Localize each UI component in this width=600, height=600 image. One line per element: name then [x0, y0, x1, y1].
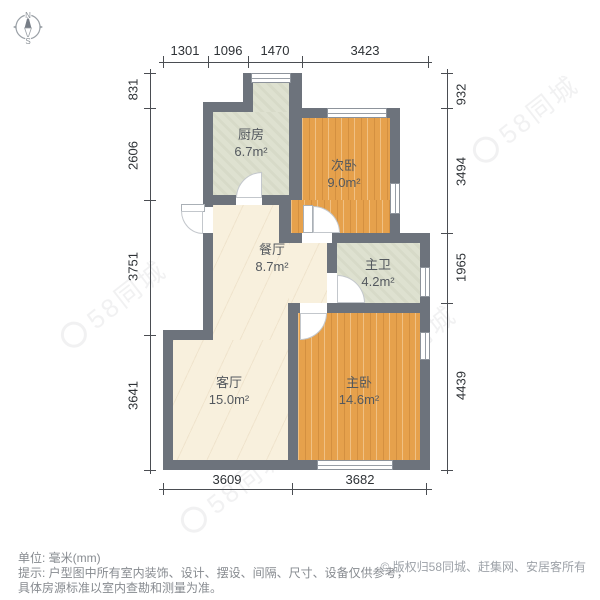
window-master-bedroom-right [420, 332, 430, 360]
dim-tick [144, 108, 156, 109]
dim-tick [248, 56, 249, 68]
dim-tick [292, 483, 293, 495]
window-second-bedroom-top [327, 108, 387, 118]
dining-room-floor-right [289, 243, 327, 303]
dim-tick [144, 470, 156, 471]
dim-tick [426, 483, 427, 495]
room-area: 14.6m² [339, 391, 379, 408]
room-area: 4.2m² [361, 273, 394, 290]
dim-label-right-2: 3494 [454, 132, 469, 212]
room-name: 厨房 [234, 126, 267, 143]
dim-line-left [150, 69, 151, 474]
dim-label-left-2: 2606 [126, 116, 141, 196]
dim-line-bottom [159, 489, 432, 490]
room-area: 8.7m² [255, 258, 288, 275]
window-second-bedroom-right [390, 183, 400, 214]
room-name: 主卧 [339, 374, 379, 391]
dim-tick [441, 233, 453, 234]
window-master-bathroom [420, 267, 430, 297]
window-master-bedroom-bottom [317, 460, 393, 470]
room-label-kitchen: 厨房 6.7m² [234, 126, 267, 160]
dim-tick [144, 335, 156, 336]
dim-tick [441, 73, 453, 74]
room-area: 6.7m² [234, 143, 267, 160]
window-kitchen [251, 73, 291, 83]
floorplan-canvas: N S 58同城 58同城 58同城 58同城 [0, 0, 600, 600]
wall-second-bedroom-right [390, 108, 400, 243]
dim-label-right-4: 4439 [454, 346, 469, 426]
room-name: 主卫 [361, 256, 394, 273]
dim-label-bottom-2: 3682 [346, 472, 375, 487]
room-name: 次卧 [327, 157, 360, 174]
dim-line-top [159, 62, 432, 63]
room-name: 餐厅 [255, 241, 288, 258]
room-name: 客厅 [209, 374, 249, 391]
room-label-second-bedroom: 次卧 9.0m² [327, 157, 360, 191]
dim-tick [144, 73, 156, 74]
room-label-living-room: 客厅 15.0m² [209, 374, 249, 408]
dim-line-right [447, 69, 448, 474]
dim-tick [208, 56, 209, 68]
dim-tick [144, 200, 156, 201]
unit-note: 单位: 毫米(mm) [18, 551, 101, 566]
master-bathroom-door-opening [327, 273, 337, 303]
dim-tick [302, 56, 303, 68]
wall-left-upper [203, 102, 213, 207]
dim-label-left-3: 3751 [126, 227, 141, 307]
entry-door-arc [181, 211, 203, 234]
dim-label-left-4: 3641 [126, 356, 141, 436]
room-label-master-bedroom: 主卧 14.6m² [339, 374, 379, 408]
dim-tick [163, 483, 164, 495]
master-bedroom-door-opening [300, 303, 327, 313]
wall-left-mid [203, 233, 213, 340]
wall-master-bedroom-left [288, 313, 298, 460]
dim-label-right-3: 1965 [454, 228, 469, 308]
dim-tick [163, 56, 164, 68]
dim-tick [441, 303, 453, 304]
dim-label-top-3: 1470 [261, 43, 290, 58]
dim-label-top-1: 1301 [171, 43, 200, 58]
dim-label-top-2: 1096 [214, 43, 243, 58]
floorplan: 厨房 6.7m² 次卧 9.0m² 餐厅 8.7m² 主卫 4.2m² 客厅 1… [0, 0, 600, 600]
room-label-dining-room: 餐厅 8.7m² [255, 241, 288, 275]
room-label-master-bathroom: 主卫 4.2m² [361, 256, 394, 290]
copyright-notice: © 版权归58同城、赶集网、安居客所有 [380, 558, 586, 575]
dim-tick [441, 108, 453, 109]
dim-label-right-1: 932 [454, 55, 469, 135]
dim-tick [428, 56, 429, 68]
disclaimer-line-2: 具体房源标准以室内查勘和测量为准。 [18, 581, 222, 596]
wall-left-lower [163, 330, 173, 470]
disclaimer-line-1: 提示: 户型图中所有室内装饰、设计、摆设、间隔、尺寸、设备仅供参考， [18, 566, 409, 581]
room-area: 15.0m² [209, 391, 249, 408]
dim-label-top-4: 3423 [351, 43, 380, 58]
dim-label-bottom-1: 3609 [213, 472, 242, 487]
wall-kitchen-bedroom-divider [289, 73, 302, 200]
dim-tick [441, 470, 453, 471]
room-area: 9.0m² [327, 174, 360, 191]
second-bedroom-door-opening [302, 233, 332, 243]
second-bedroom-door-panel [303, 205, 313, 233]
